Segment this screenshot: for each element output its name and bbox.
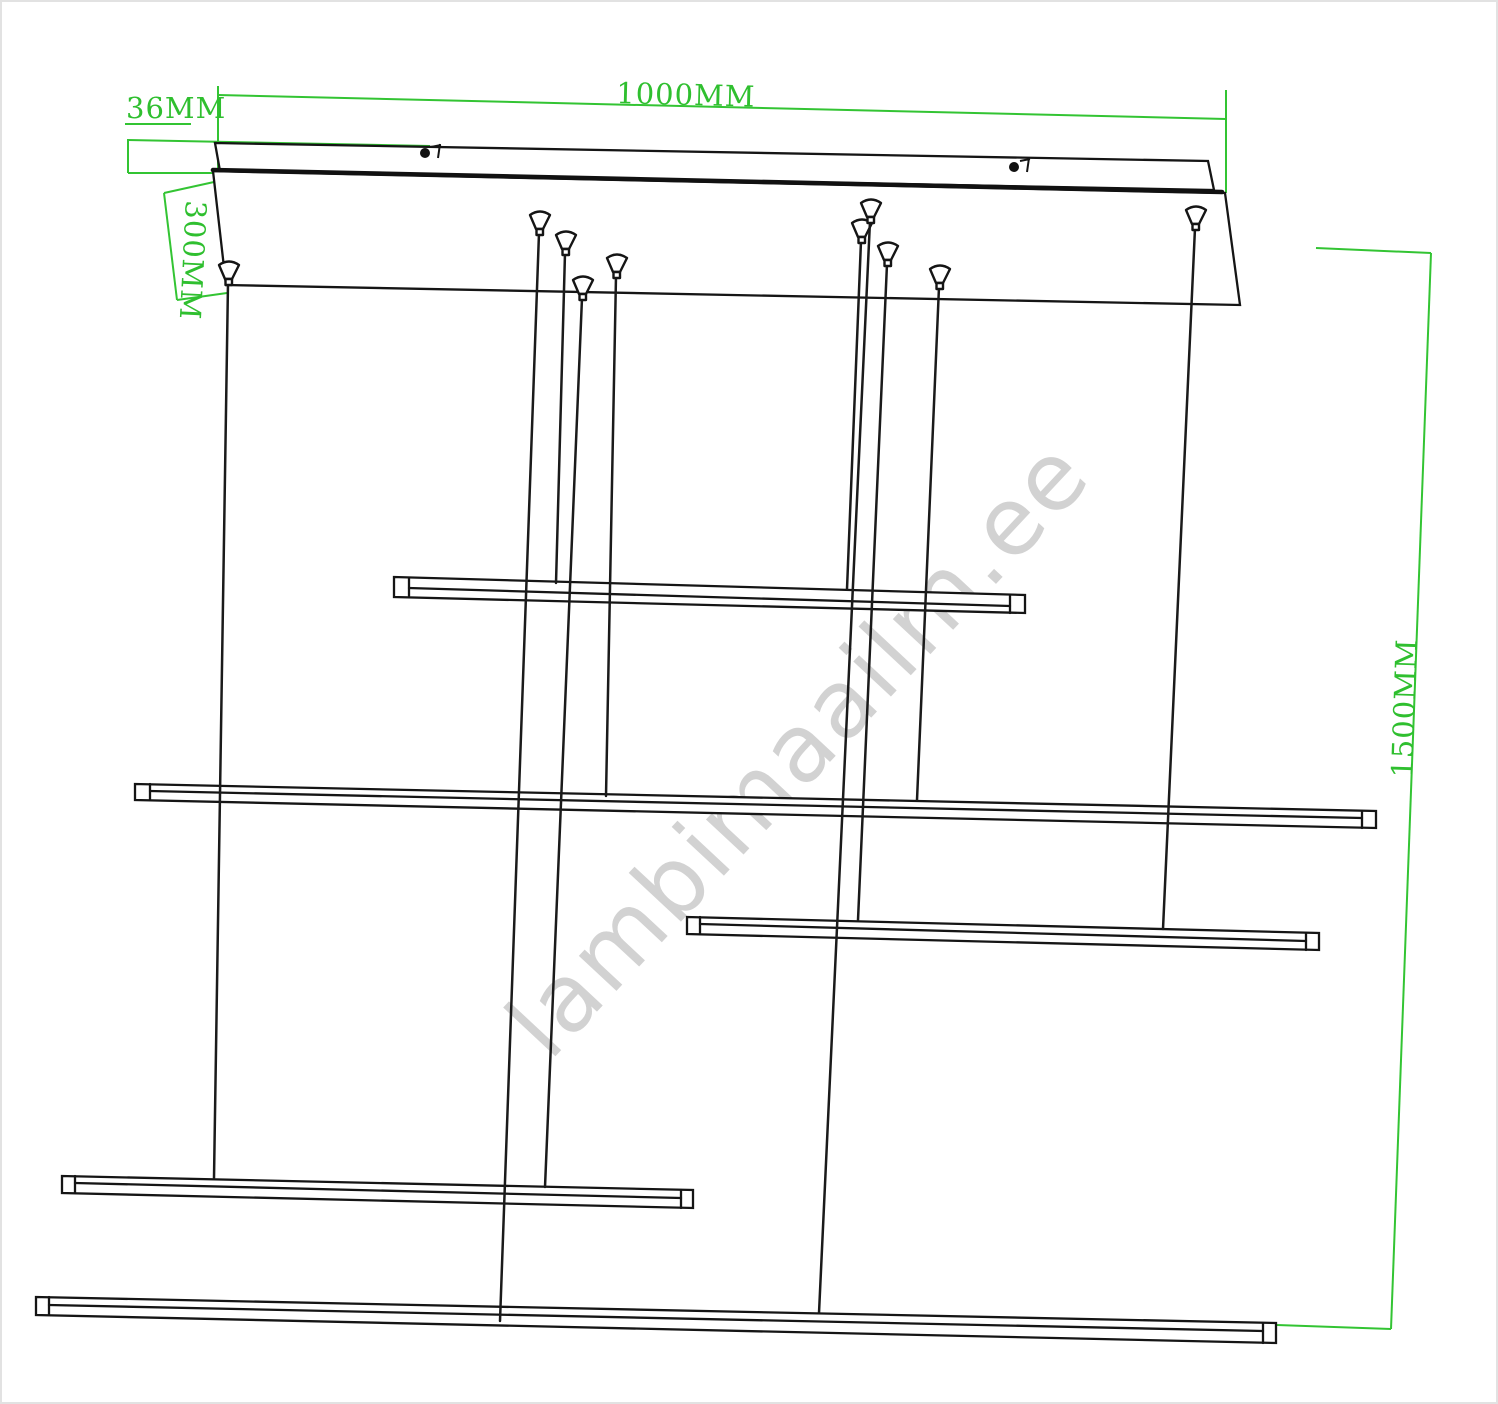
suspension-wire-2 xyxy=(500,212,550,1322)
suspension-wire-5 xyxy=(606,255,627,797)
light-bar-3 xyxy=(687,917,1319,950)
dim-drop-vertical xyxy=(1391,253,1431,1329)
dimension-label-canopy-thickness: 36MM xyxy=(126,91,226,125)
technical-drawing-canvas: lambimaailm.ee 1000MM 36MM 300MM 1500MM xyxy=(0,0,1498,1404)
suspension-wires xyxy=(214,200,1206,1322)
dimension-drop-1500mm: 1500MM xyxy=(1277,248,1431,1329)
dim-drop-top xyxy=(1316,248,1431,253)
suspension-wire-1 xyxy=(214,262,239,1179)
dimension-label-canopy-depth: 300MM xyxy=(173,200,213,321)
dim-depth-top xyxy=(164,182,214,193)
ceiling-canopy xyxy=(213,143,1240,305)
dim-drop-bottom xyxy=(1277,1325,1391,1329)
dimension-label-width: 1000MM xyxy=(616,76,756,114)
light-bar-5 xyxy=(36,1297,1276,1343)
light-bar-4 xyxy=(62,1176,693,1208)
watermark-text: lambimaailm.ee xyxy=(487,420,1112,1079)
dimension-label-drop: 1500MM xyxy=(1385,638,1424,778)
pendant-light-technical-drawing: lambimaailm.ee 1000MM 36MM 300MM 1500MM xyxy=(0,0,1498,1404)
